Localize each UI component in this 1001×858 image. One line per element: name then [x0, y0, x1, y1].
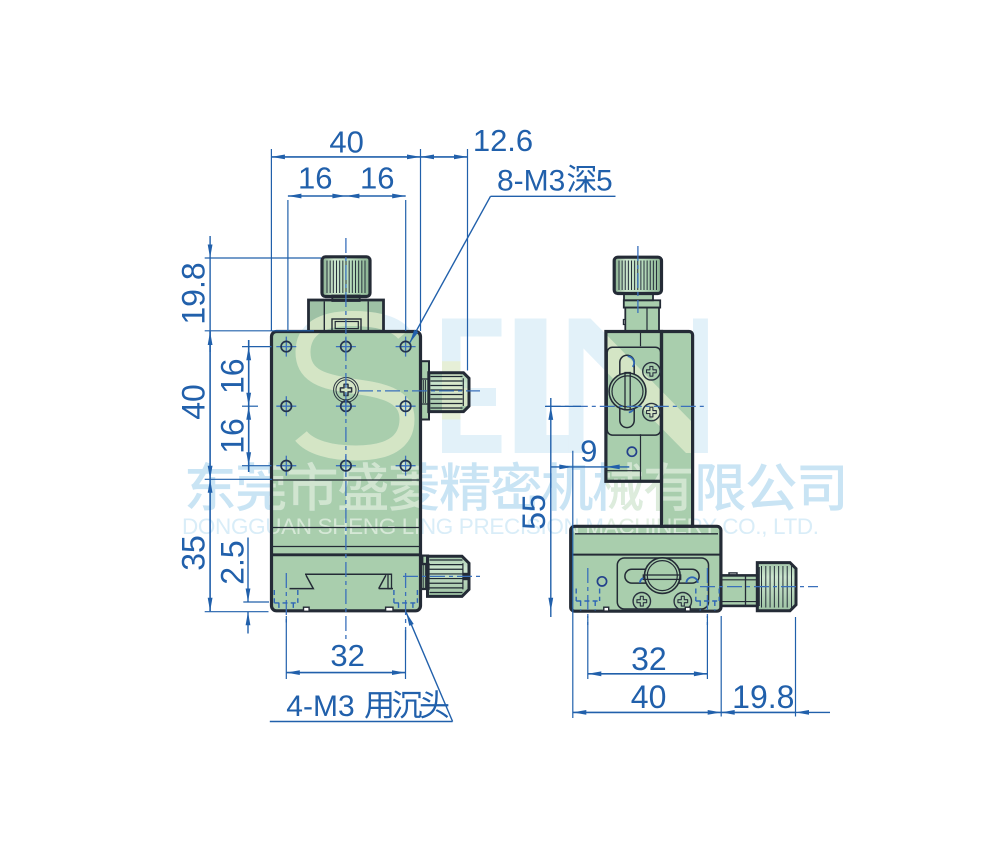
svg-text:32: 32 [631, 641, 667, 677]
svg-text:16: 16 [215, 358, 251, 394]
svg-text:12.6: 12.6 [473, 123, 533, 158]
svg-text:2.5: 2.5 [215, 540, 251, 584]
svg-text:9: 9 [580, 434, 597, 469]
svg-text:16: 16 [298, 160, 332, 195]
svg-text:35: 35 [175, 535, 211, 571]
svg-text:40: 40 [631, 679, 667, 715]
svg-text:5: 5 [596, 164, 613, 197]
svg-text:40: 40 [329, 125, 363, 160]
svg-text:32: 32 [330, 638, 364, 673]
svg-text:16: 16 [360, 160, 394, 195]
svg-text:55: 55 [516, 494, 552, 530]
svg-text:4-M3: 4-M3 [286, 690, 354, 723]
svg-text:16: 16 [215, 418, 251, 454]
svg-text:19.8: 19.8 [732, 679, 794, 715]
svg-text:8-M3: 8-M3 [497, 164, 565, 197]
svg-text:19.8: 19.8 [175, 262, 211, 324]
svg-text:40: 40 [175, 384, 211, 420]
